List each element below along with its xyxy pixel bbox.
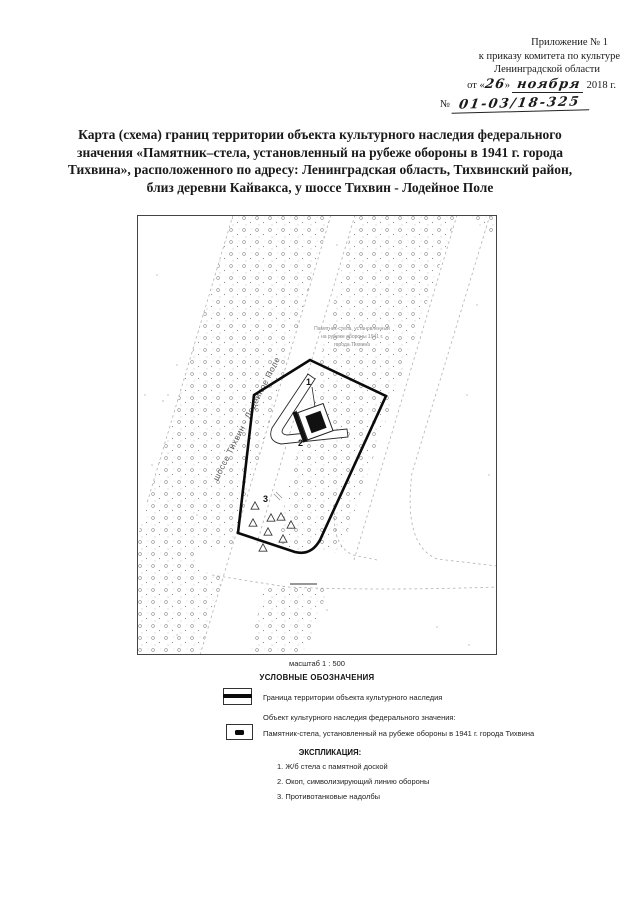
marker-1: 1 xyxy=(306,377,311,387)
object-heading: Объект культурного наследия федерального… xyxy=(263,713,456,722)
order-number-line: № 01-03/18-325 xyxy=(332,97,622,115)
handwritten-day: 26 xyxy=(484,78,506,92)
title-line: значения «Памятник–стела, установленный … xyxy=(0,144,640,162)
explication-item: 1. Ж/б стела с памятной доской xyxy=(277,762,388,771)
map-schema: шоссе Тихвин - Лодейное Поле Памятник-ст… xyxy=(137,215,497,655)
order-date-line: от «26» ноября 2018 г. xyxy=(332,78,622,95)
map-drawing: шоссе Тихвин - Лодейное Поле Памятник-ст… xyxy=(137,215,497,655)
date-suffix: 2018 г. xyxy=(587,80,616,91)
object-label: Памятник-стела, установленный на рубеже … xyxy=(263,729,534,738)
appendix-line: к приказу комитета по культуре xyxy=(332,50,622,64)
appendix-line: Ленинградской области xyxy=(332,63,622,77)
handwritten-month: ноября xyxy=(512,78,585,93)
boundary-label: Граница территории объекта культурного н… xyxy=(263,693,442,702)
document-page: Приложение № 1 к приказу комитета по кул… xyxy=(0,0,640,905)
svg-text:города Тихвина: города Тихвина xyxy=(334,342,370,348)
svg-text:на рубеже обороны 1941 г.: на рубеже обороны 1941 г. xyxy=(321,334,383,340)
svg-text:Памятник-стела, установленный: Памятник-стела, установленный xyxy=(314,325,390,332)
boundary-symbol-bar xyxy=(223,694,252,698)
boundary-symbol-icon xyxy=(223,688,252,705)
title-line: Карта (схема) границ территории объекта … xyxy=(0,126,640,144)
marker-3: 3 xyxy=(263,494,268,504)
date-prefix: от « xyxy=(467,80,485,91)
map-scale: масштаб 1 : 500 xyxy=(137,659,497,668)
monument-symbol-icon xyxy=(226,724,253,740)
title-line: Тихвина», расположенного по адресу: Лени… xyxy=(0,161,640,179)
appendix-line: Приложение № 1 xyxy=(332,36,622,50)
legend-heading: УСЛОВНЫЕ ОБОЗНАЧЕНИЯ xyxy=(137,673,497,682)
marker-2: 2 xyxy=(298,438,303,448)
monument-symbol-rect xyxy=(235,730,244,735)
explication-item: 2. Окоп, символизирующий линию обороны xyxy=(277,777,429,786)
explication-item: 3. Противотанковые надолбы xyxy=(277,792,380,801)
appendix-header: Приложение № 1 к приказу комитета по кул… xyxy=(332,36,622,115)
number-label: № xyxy=(440,99,450,110)
page-title: Карта (схема) границ территории объекта … xyxy=(0,126,640,196)
title-line: близ деревни Кайвакса, у шоссе Тихвин - … xyxy=(0,179,640,197)
explication-heading: ЭКСПЛИКАЦИЯ: xyxy=(137,748,523,757)
handwritten-number: 01-03/18-325 xyxy=(451,95,591,113)
